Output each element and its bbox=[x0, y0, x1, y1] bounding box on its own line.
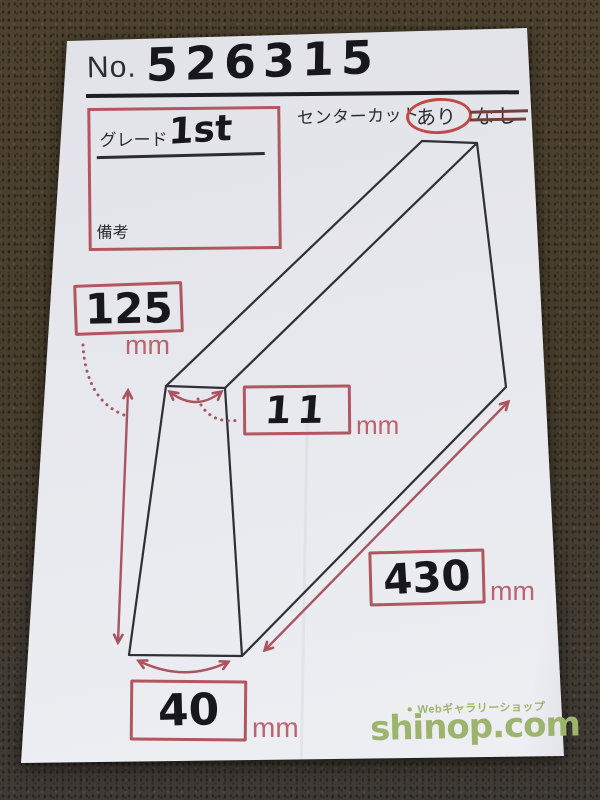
height-value-handwritten: 125 bbox=[84, 283, 173, 334]
remarks-label: 備考 bbox=[96, 219, 128, 243]
height-leader-dotted bbox=[83, 345, 124, 415]
height-arrow bbox=[118, 391, 128, 642]
logo-site-name: shinop.com bbox=[370, 704, 581, 749]
bottom-width-unit-label: mm bbox=[252, 712, 299, 744]
grade-remarks-box: グレード 1st 備考 bbox=[87, 106, 281, 251]
no-value-handwritten: 526315 bbox=[146, 30, 381, 92]
top-thickness-leader-dotted bbox=[198, 399, 240, 421]
length-unit-label: mm bbox=[490, 576, 535, 607]
photo-scene: No. 526315 グレード 1st 備考 センターカット あり なし bbox=[0, 0, 600, 800]
bottom-width-value-handwritten: 40 bbox=[157, 684, 220, 737]
grade-value-handwritten: 1st bbox=[168, 108, 233, 153]
grade-label: グレード bbox=[99, 125, 167, 151]
bottom-width-arc-arrow bbox=[139, 661, 228, 672]
top-thickness-arc-arrow bbox=[170, 392, 221, 402]
top-thickness-unit-label: mm bbox=[356, 410, 399, 441]
bottom-width-dimension-box: 40 bbox=[130, 679, 248, 741]
height-dimension-box: 125 bbox=[73, 281, 184, 336]
board-front-face bbox=[129, 386, 242, 656]
length-value-handwritten: 430 bbox=[382, 550, 472, 604]
center-cut-label: センターカット bbox=[297, 100, 420, 128]
shop-logo: ● Webギャラリーショップ shinop.com bbox=[369, 696, 555, 750]
top-thickness-value-handwritten: 11 bbox=[263, 388, 331, 433]
center-cut-option-no: なし bbox=[474, 99, 521, 129]
top-thickness-dimension-box: 11 bbox=[243, 385, 351, 436]
no-label: No. bbox=[87, 51, 137, 86]
order-form: No. 526315 グレード 1st 備考 センターカット あり なし bbox=[0, 0, 600, 800]
height-unit-label: mm bbox=[125, 330, 170, 361]
length-dimension-box: 430 bbox=[368, 548, 485, 606]
grade-underline bbox=[97, 152, 265, 159]
